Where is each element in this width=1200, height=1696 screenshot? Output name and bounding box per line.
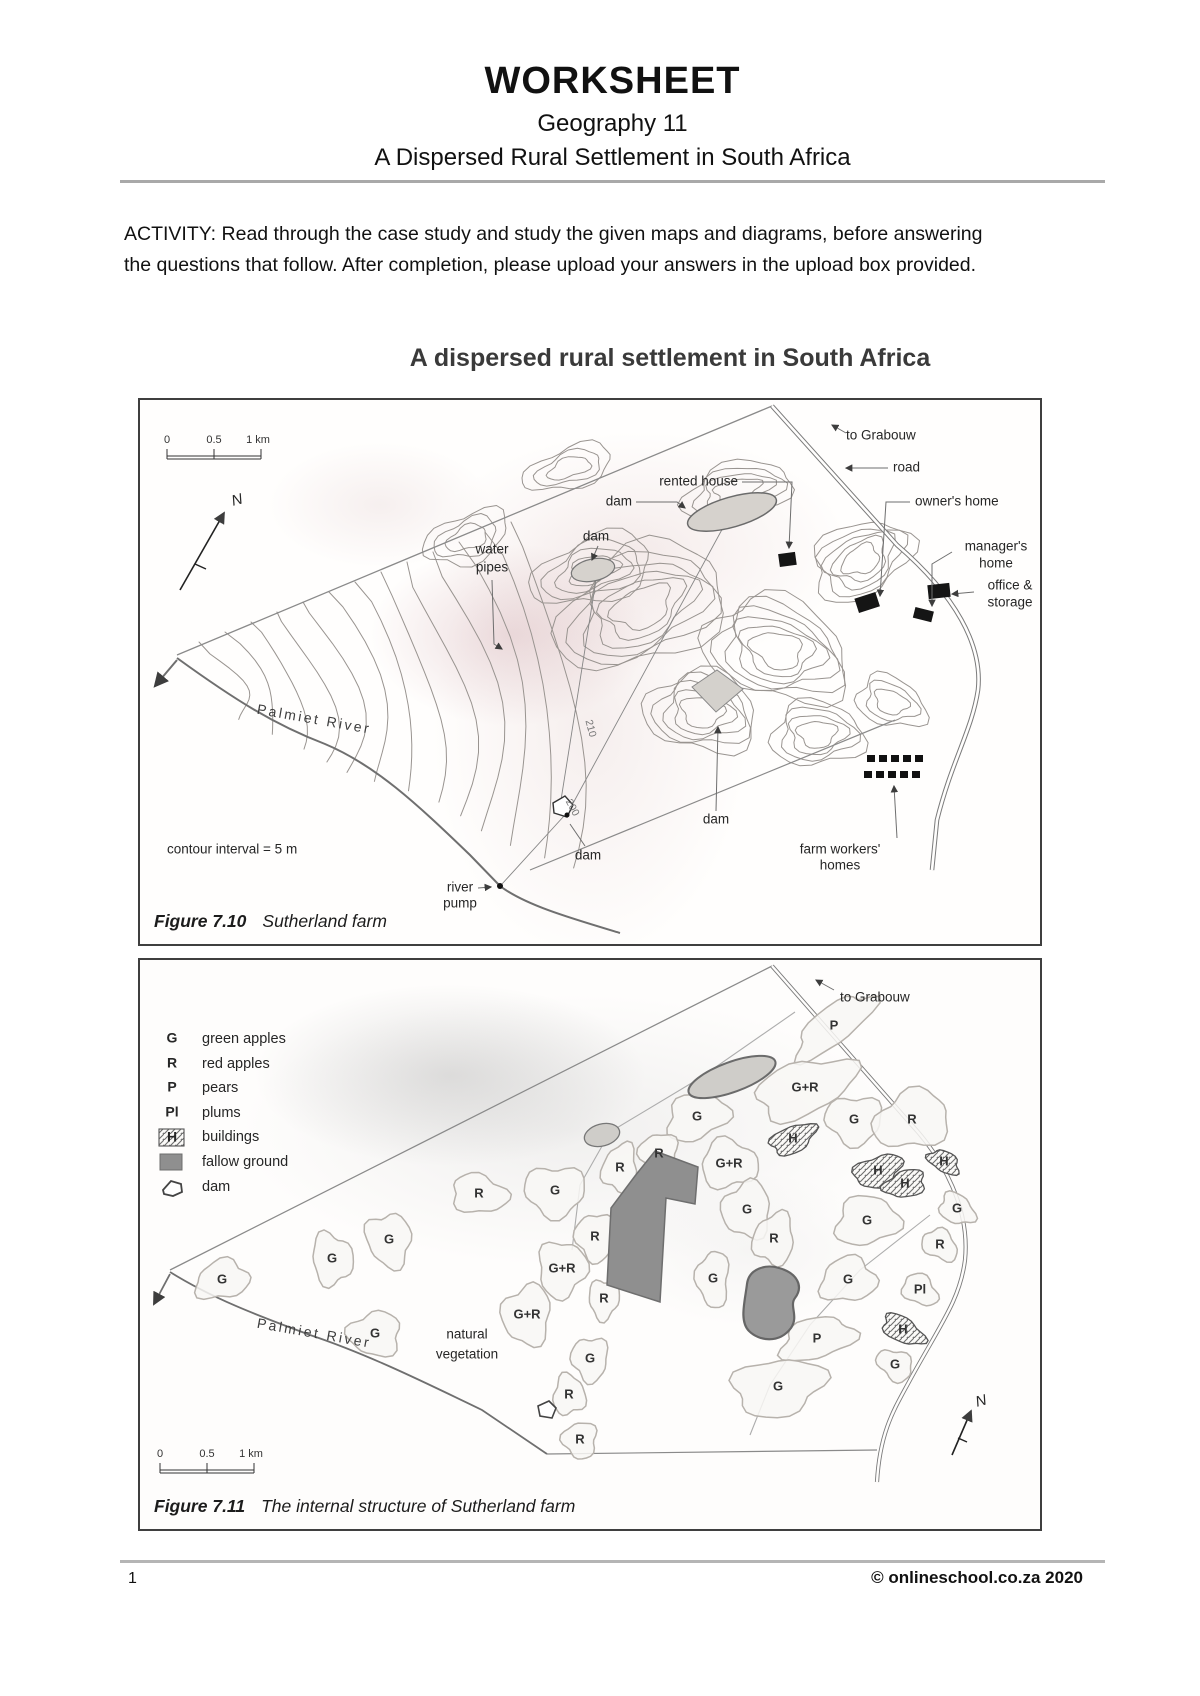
north-label: N [230,490,245,509]
north-arrow: N [180,490,245,590]
legend-label-dam: dam [202,1179,230,1195]
legend-symbol-buildings: H [167,1129,177,1145]
parcel-label: R [654,1145,664,1160]
parcel-label: P [813,1330,822,1345]
parcel-label: G+R [513,1306,541,1321]
dam-top-label: dam [606,494,632,509]
orchard-parcels-layer [195,996,978,1459]
figure-7-11: P G+R G R G H R R G+R H H H R G G G G R … [138,958,1042,1531]
legend: G green apples R red apples P pears Pl p… [159,1030,288,1196]
parcel-label: G [773,1378,783,1393]
contour-interval-note: contour interval = 5 m [167,842,297,857]
parcel-label: R [474,1185,484,1200]
fallow-ground-blob [743,1267,799,1340]
parcel-label: G+R [715,1155,743,1170]
scale-bar [160,1463,254,1473]
river-pump-label-1: river [447,880,474,895]
river-flow-arrow [155,660,177,686]
page-number: 1 [128,1570,137,1588]
dam-mid-label: dam [583,529,609,544]
scale-one-km: 1 km [239,1448,263,1460]
parcel-label: G [217,1271,227,1286]
river-flow-arrow [154,1274,170,1304]
legend-symbol-pears: P [167,1079,176,1095]
north-arrow: N [952,1391,989,1455]
to-grabouw-label: to Grabouw [840,990,910,1005]
palmiet-river-line [177,658,620,933]
subject-line: Geography 11 [120,110,1105,138]
parcel-label: H [900,1175,909,1190]
river-pump-dot [497,883,503,889]
activity-paragraph: ACTIVITY: Read through the case study an… [124,219,986,281]
parcel-label: G [550,1182,560,1197]
sutherland-farm-landuse-map: P G+R G R G H R R G+R H H H R G G G G R … [140,960,1040,1529]
rented-house-label: rented house [659,474,738,489]
copyright-notice: © onlineschool.co.za 2020 [560,1568,1083,1588]
owners-home-label: owner's home [915,494,999,509]
parcel-label: G [692,1108,702,1123]
scale-bar [167,449,261,459]
managers-home-label-1: manager's [965,539,1028,554]
parcel-label: G [708,1270,718,1285]
parcel-label: H [873,1162,882,1177]
scale-zero: 0 [157,1448,163,1460]
palmiet-river-label: Palmiet River [256,701,373,737]
parcel-label: H [898,1321,907,1336]
grabouw-arrow [816,980,834,990]
worksheet-page: WORKSHEET Geography 11 A Dispersed Rural… [0,0,1200,1696]
parcel-label: G [890,1356,900,1371]
scale-one-km: 1 km [246,434,270,446]
legend-symbol-red-apples: R [167,1055,177,1071]
rented-house-building [778,552,797,567]
parcel-label: G [862,1212,872,1227]
managers-home-label-2: home [979,556,1013,571]
parcel-label: R [564,1386,574,1401]
figure-710-caption-label: Figure 7.10 [154,911,246,931]
parcel-label: G+R [791,1079,819,1094]
footer-divider [120,1560,1105,1563]
parcel-label: R [575,1431,585,1446]
figure-711-caption-text: The internal structure of Sutherland far… [261,1496,575,1516]
legend-label-fallow: fallow ground [202,1154,288,1170]
scale-zero: 0 [164,434,170,446]
office-storage-building [927,583,950,599]
scale-half: 0.5 [199,1448,214,1460]
legend-label-red-apples: red apples [202,1056,270,1072]
farm-south-boundary [547,1450,877,1454]
parcel-label: G [585,1350,595,1365]
topic-line: A Dispersed Rural Settlement in South Af… [120,144,1105,172]
farm-workers-label-1: farm workers' [800,842,881,857]
figure-710-caption: Figure 7.10Sutherland farm [154,911,387,932]
dam-right-label: dam [703,812,729,827]
palmiet-river-label: Palmiet River [256,1315,373,1351]
parcel-label: G+R [548,1260,576,1275]
road-fill [772,406,979,870]
legend-symbol-plums: Pl [165,1104,178,1120]
parcel-label: G [742,1201,752,1216]
dam-small [582,1120,622,1151]
parcel-label: R [590,1228,600,1243]
parcel-label: G [327,1250,337,1265]
north-label: N [974,1391,989,1410]
parcel-label: G [952,1200,962,1215]
parcel-label: P [830,1017,839,1032]
sutherland-farm-contour-map: 0 0.5 1 km N to Grabouw road rented hous… [140,400,1040,944]
parcel-label: R [769,1230,779,1245]
water-pipes-label-1: water [474,542,509,557]
legend-symbol-green-apples: G [167,1030,178,1046]
contour-210-label: 210 [582,718,598,738]
managers-home-building [913,607,934,622]
office-storage-label-2: storage [987,595,1032,610]
map-section-title: A dispersed rural settlement in South Af… [300,344,1040,373]
office-storage-label-1: office & [988,578,1033,593]
parcel-label: R [907,1111,917,1126]
legend-fallow-swatch [160,1154,182,1170]
figure-711-caption: Figure 7.11The internal structure of Sut… [154,1496,575,1517]
figure-7-10: 0 0.5 1 km N to Grabouw road rented hous… [138,398,1042,946]
dam-elongated [684,485,781,539]
road-outline [772,406,979,870]
legend-label-pears: pears [202,1080,238,1096]
to-grabouw-label: to Grabouw [846,428,916,443]
parcel-label: Pl [914,1281,926,1296]
parcel-label: R [599,1290,609,1305]
page-title: WORKSHEET [120,60,1105,103]
parcel-label: H [788,1130,797,1145]
parcel-label: R [615,1159,625,1174]
parcel-label: G [384,1231,394,1246]
natural-vegetation-label-1: natural [446,1327,487,1342]
road-label: road [893,460,920,475]
farm-workers-label-2: homes [820,858,861,873]
parcel-label: G [843,1271,853,1286]
river-pump-label-2: pump [443,896,477,911]
legend-dam-swatch [163,1181,182,1196]
legend-label-plums: plums [202,1105,241,1121]
dam-bottom-label: dam [575,848,601,863]
water-pipes-label-2: pipes [476,560,509,575]
palmiet-river-line [170,1272,547,1454]
figure-710-caption-text: Sutherland farm [262,911,387,931]
farm-workers-houses [864,755,923,778]
header-divider [120,180,1105,183]
header: WORKSHEET Geography 11 A Dispersed Rural… [120,60,1105,172]
parcel-label: G [849,1111,859,1126]
parcel-label: H [939,1153,948,1168]
legend-label-green-apples: green apples [202,1031,286,1047]
parcel-label: R [935,1236,945,1251]
natural-vegetation-label-2: vegetation [436,1347,498,1362]
legend-label-buildings: buildings [202,1129,259,1145]
scale-half: 0.5 [206,434,221,446]
figure-711-caption-label: Figure 7.11 [154,1496,245,1516]
